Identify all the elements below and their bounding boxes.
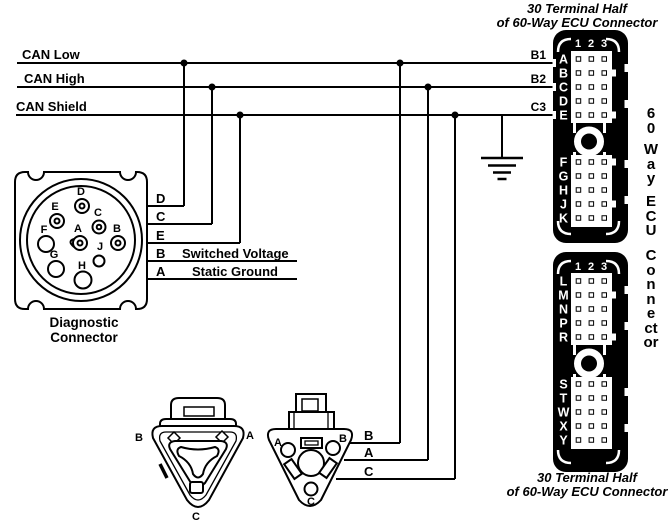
- ecu-row-g: G: [559, 170, 569, 184]
- left-triangle-pin-a-label: A: [246, 430, 254, 442]
- can-low-label: CAN Low: [22, 47, 81, 62]
- ecu-half2-nub: [612, 334, 616, 341]
- ecu-half1-nub: [612, 201, 616, 208]
- right-triangle-pin-b-label: B: [339, 433, 347, 445]
- wiring-diagram: CAN Low CAN High CAN Shield B1 B2 C3: [0, 0, 671, 521]
- wire-row-e-label: E: [156, 228, 165, 243]
- diagnostic-pin-e-label: E: [51, 201, 58, 213]
- wire-row-a-label: A: [156, 264, 166, 279]
- ecu-connector-half-2: 1 2 3 L M N P R S T W X Y: [553, 252, 628, 472]
- ecu-row-m: M: [558, 289, 568, 303]
- ecu-half1-mount-hole: [581, 134, 597, 150]
- ecu-half1-col-3: 3: [601, 38, 607, 50]
- diagnostic-pin-c-label: C: [94, 207, 102, 219]
- junction-dot: [425, 84, 432, 91]
- ecu-side-label-way: Way: [643, 143, 659, 187]
- ecu-row-y: Y: [559, 434, 568, 448]
- ecu-terminal-b2-label: B2: [531, 72, 547, 86]
- ecu-half1-nub: [612, 70, 616, 77]
- left-triangle-shade-mark: [160, 464, 167, 478]
- can-shield-label: CAN Shield: [16, 99, 87, 114]
- ecu-side-label-ecu: ECU: [643, 195, 659, 239]
- ecu-half2-col-3: 3: [601, 261, 607, 273]
- ecu-row-c: C: [559, 81, 568, 95]
- ecu-half1-col-2: 2: [588, 38, 594, 50]
- diagnostic-pin-g-label: G: [50, 249, 59, 261]
- ecu-half2-strut: [603, 345, 606, 355]
- ecu-half2-col-2: 2: [588, 261, 594, 273]
- ecu-half2-edge-tick: [625, 286, 629, 294]
- ecu-bottom-caption-line2: of 60-Way ECU Connector: [507, 484, 669, 499]
- diagnostic-caption-line1: Diagnostic: [49, 315, 119, 330]
- ecu-row-h: H: [559, 184, 568, 198]
- ecu-half2-nub: [612, 292, 616, 299]
- ecu-row-w: W: [558, 406, 570, 420]
- ecu-row-b: B: [559, 67, 568, 81]
- sensor-connector-face-view: B A C: [135, 398, 254, 521]
- diagnostic-caption-line2: Connector: [50, 330, 118, 345]
- ecu-half2-edge-tick: [625, 424, 629, 432]
- ecu-row-s: S: [559, 378, 567, 392]
- junction-dot: [209, 84, 216, 91]
- diagnostic-pin-f-label: F: [41, 224, 48, 236]
- sensor-branch-wires: [400, 63, 455, 479]
- ecu-top-caption-line1: 30 Terminal Half: [527, 1, 629, 16]
- sensor-connector-wire-view: A B C B A C: [268, 394, 455, 508]
- wire-row-d-label: D: [156, 191, 165, 206]
- ecu-row-j: J: [560, 198, 567, 212]
- right-triangle-tab-slot: [302, 399, 318, 411]
- can-high-label: CAN High: [24, 71, 85, 86]
- ecu-row-a: A: [559, 53, 568, 67]
- ecu-top-caption-line2: of 60-Way ECU Connector: [497, 15, 659, 30]
- ecu-row-r: R: [559, 331, 568, 345]
- static-ground-label: Static Ground: [192, 264, 278, 279]
- ecu-half1-nub: [612, 159, 616, 166]
- sensor-wire-c-label: C: [364, 464, 374, 479]
- wire-row-b-label: B: [156, 246, 165, 261]
- diagnostic-pin-j-label: J: [97, 241, 103, 253]
- left-triangle-pin-b-label: B: [135, 432, 143, 444]
- wiring-diagram-page: CAN Low CAN High CAN Shield B1 B2 C3: [0, 0, 671, 521]
- left-triangle-bottom-key: [190, 482, 203, 493]
- ecu-half1-edge-tick: [625, 196, 629, 204]
- sensor-wire-b-label: B: [364, 428, 373, 443]
- ecu-half1-col-1: 1: [575, 38, 581, 50]
- right-triangle-pin-a-label: A: [274, 437, 282, 449]
- ecu-side-label-60: 60: [643, 107, 659, 136]
- diagnostic-pin-h-label: H: [78, 260, 86, 272]
- right-triangle-tab-base: [289, 412, 334, 430]
- right-triangle-top-key: [301, 438, 322, 448]
- ecu-terminal-b1-label: B1: [531, 48, 547, 62]
- junction-dot: [397, 60, 404, 67]
- can-bus: CAN Low CAN High CAN Shield B1 B2 C3: [16, 47, 553, 115]
- ecu-bottom-caption-line1: 30 Terminal Half: [537, 470, 639, 485]
- ecu-half1-edge-tick: [625, 160, 629, 168]
- ecu-row-k: K: [559, 212, 568, 226]
- ecu-half1-nub: [612, 112, 616, 119]
- ecu-connector-half-1: 1 2 3 A B C D E F G H J K: [553, 30, 629, 243]
- wire-row-c-label: C: [156, 209, 166, 224]
- ecu-row-l: L: [560, 275, 568, 289]
- diagnostic-pin-a-label: A: [74, 223, 82, 235]
- diagnostic-pin-b-label: B: [113, 223, 121, 235]
- ecu-terminal-c3-label: C3: [531, 100, 547, 114]
- left-triangle-pin-c-label: C: [192, 511, 200, 521]
- ecu-half1-strut: [573, 123, 576, 133]
- ecu-row-p: P: [559, 317, 567, 331]
- ecu-half2-mount-hole: [581, 356, 597, 372]
- switched-voltage-label: Switched Voltage: [182, 246, 289, 261]
- sensor-wire-a-label: A: [364, 445, 374, 460]
- ecu-half1-edge-tick: [625, 100, 629, 108]
- ecu-row-d: D: [559, 95, 568, 109]
- ecu-side-label-connector: Connector: [643, 249, 659, 351]
- diagnostic-pin-d-label: D: [77, 186, 85, 198]
- junction-dot: [181, 60, 188, 67]
- junction-dot: [237, 112, 244, 119]
- right-triangle-pin-c-label: C: [307, 496, 315, 508]
- left-triangle-tab-slot: [184, 407, 214, 416]
- ecu-half2-edge-tick: [625, 388, 629, 396]
- diagnostic-wire-fan: D C E B A Switched Voltage Static Ground: [147, 191, 297, 279]
- ground-symbol: [481, 115, 523, 179]
- junction-dot: [452, 112, 459, 119]
- ecu-row-f: F: [560, 156, 568, 170]
- ecu-half2-edge-tick: [625, 322, 629, 330]
- ecu-row-n: N: [559, 303, 568, 317]
- ecu-half1-edge-tick: [625, 64, 629, 72]
- ecu-wire-slot-b2: [553, 83, 557, 91]
- ecu-row-t: T: [560, 392, 568, 406]
- ecu-row-e: E: [559, 109, 567, 123]
- ecu-wire-slot-b1: [553, 59, 557, 67]
- ecu-half2-strut: [573, 345, 576, 355]
- diagnostic-connector: D E C A F B G J H Diagnostic Connector: [15, 172, 147, 345]
- ecu-wire-slot-c3: [553, 111, 557, 119]
- junction-dots: [181, 60, 459, 119]
- ecu-half2-col-1: 1: [575, 261, 581, 273]
- ecu-row-x: X: [559, 420, 568, 434]
- ecu-half1-strut: [603, 123, 606, 133]
